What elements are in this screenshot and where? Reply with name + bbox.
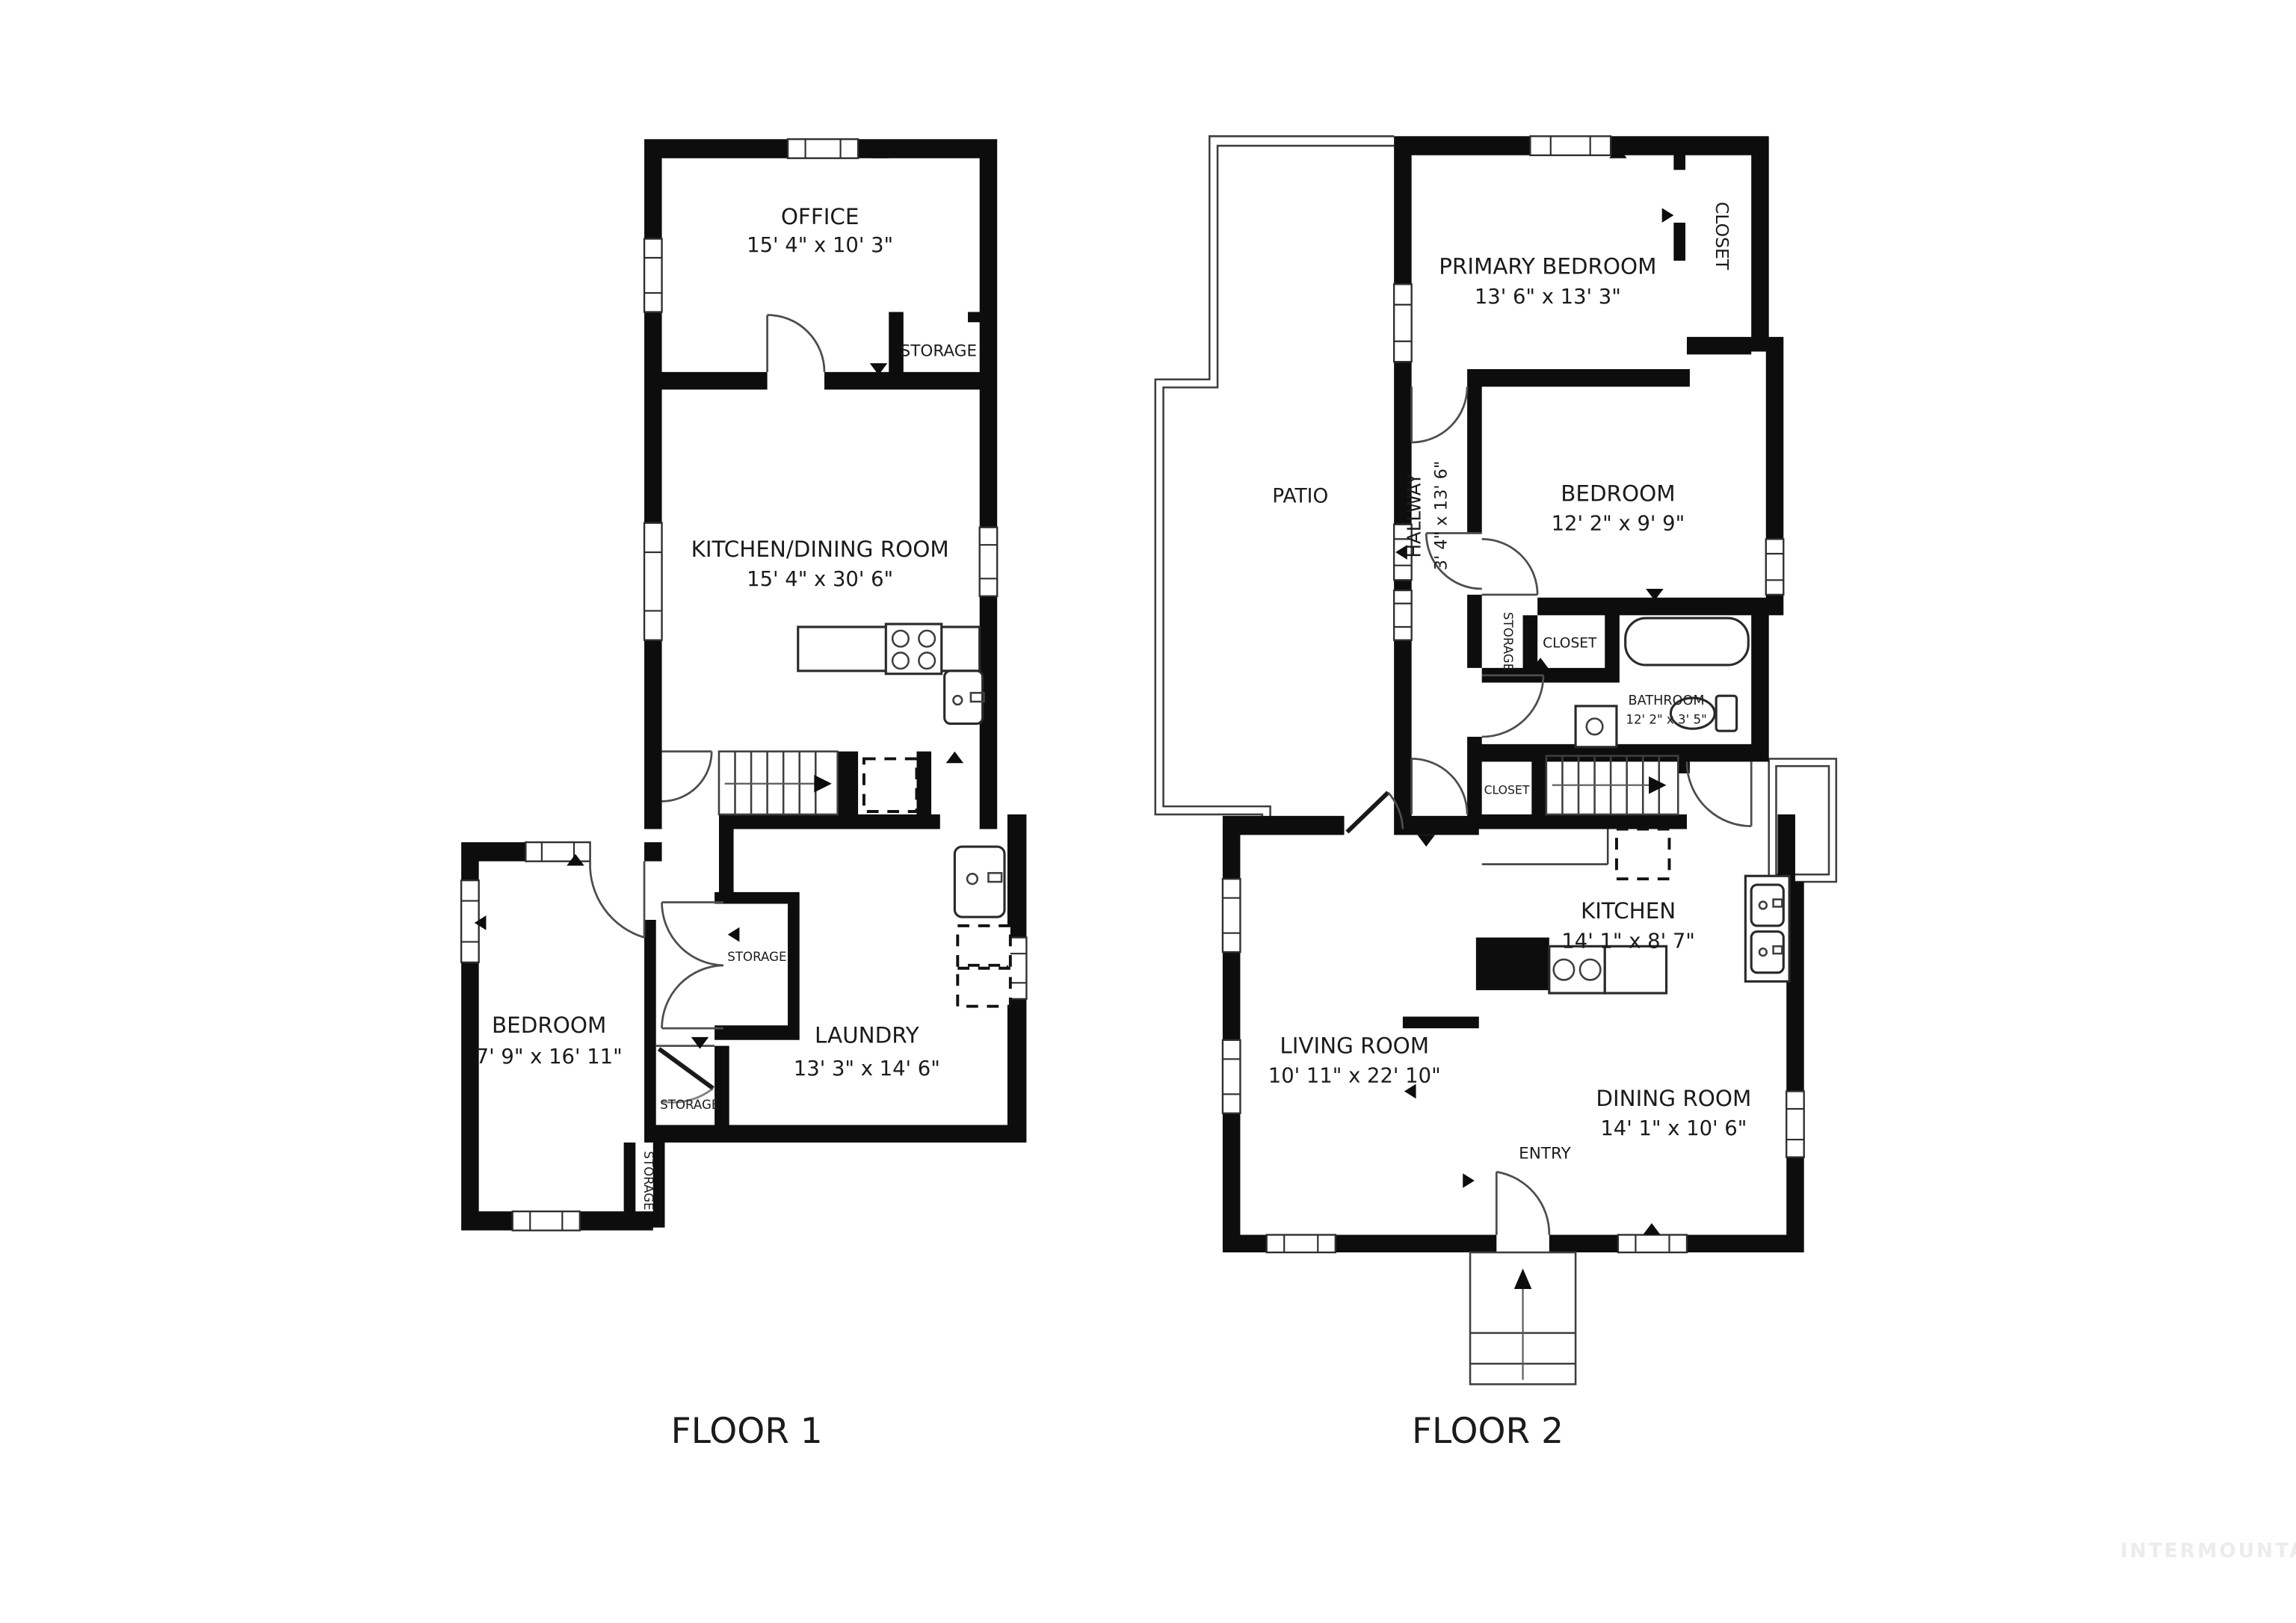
appliance2-dashed-box [1617, 829, 1670, 879]
bathroom-dims: 12' 2" x 3' 5" [1626, 712, 1706, 726]
kitchen2-dims: 14' 1" x 8' 7" [1561, 930, 1695, 953]
floor1-stairs [719, 752, 838, 814]
closet-storage-label: STORAGE [727, 950, 786, 964]
office-dims: 15' 4" x 10' 3" [747, 234, 893, 257]
washer-dashed-box [957, 926, 1010, 965]
entry-label: ENTRY [1519, 1145, 1571, 1163]
hall-closet-label: CLOSET [1543, 635, 1597, 651]
dining-room-label: DINING ROOM [1596, 1086, 1751, 1111]
office-label: OFFICE [781, 204, 860, 229]
stove-icon [886, 624, 941, 674]
kitchen2-counter-fixture [1549, 946, 1667, 993]
office-storage-label: STORAGE [901, 341, 978, 360]
dining-room-dims: 14' 1" x 10' 6" [1600, 1117, 1747, 1140]
bathtub-icon [1626, 618, 1749, 665]
kitchen2-label: KITCHEN [1581, 898, 1676, 924]
primary-bedroom-label: PRIMARY BEDROOM [1439, 254, 1656, 279]
kitchen-dining-dims: 15' 4" x 30' 6" [747, 568, 893, 591]
side-storage-label: STORAGE [641, 1151, 655, 1210]
floor2-plan: PATIO PRIMARY BEDROOM 13' 6" x 13' 3" CL… [1155, 136, 1836, 1452]
living-room-dims: 10' 11" x 22' 10" [1268, 1065, 1441, 1088]
kitchen-sink-icon [945, 671, 984, 724]
bathroom-label: BATHROOM [1629, 693, 1705, 708]
appliance-dashed-box [864, 758, 917, 811]
floor2-title: FLOOR 2 [1412, 1411, 1564, 1452]
hall-storage-label: STORAGE [1501, 612, 1515, 671]
primary-bedroom-dims: 13' 6" x 13' 3" [1475, 285, 1621, 309]
bedroom2-dims: 12' 2" x 9' 9" [1552, 513, 1685, 536]
hallway-dims: 3' 4" x 13' 6" [1432, 461, 1451, 571]
floor1-plan: OFFICE 15' 4" x 10' 3" STORAGE KITCHEN/D… [461, 139, 1026, 1452]
laundry-sink-icon [954, 847, 1004, 917]
laundry-dims: 13' 3" x 14' 6" [794, 1057, 940, 1081]
bedroom1-dims: 7' 9" x 16' 11" [476, 1045, 623, 1069]
hallway-label: HALLWAY [1403, 474, 1425, 558]
living-room-label: LIVING ROOM [1280, 1033, 1429, 1058]
primary-closet-label: CLOSET [1712, 202, 1732, 270]
stove2-icon [1549, 946, 1605, 993]
watermark-text: INTERMOUNTAIN [2120, 1539, 2296, 1562]
entry-steps [1470, 1252, 1576, 1384]
laundry-label: LAUNDRY [815, 1023, 919, 1048]
kitchen-dining-label: KITCHEN/DINING ROOM [691, 537, 949, 562]
floor1-title: FLOOR 1 [671, 1411, 823, 1452]
dryer-dashed-box [957, 968, 1010, 1007]
bedroom2-label: BEDROOM [1561, 480, 1675, 506]
floorplan-canvas: OFFICE 15' 4" x 10' 3" STORAGE KITCHEN/D… [0, 0, 2296, 1623]
bedroom1-label: BEDROOM [492, 1013, 606, 1038]
lower-storage-label: STORAGE [660, 1098, 719, 1112]
stair-closet-label: CLOSET [1484, 782, 1530, 797]
bathroom-sink-icon [1576, 706, 1617, 747]
floor2-fixtures [1470, 618, 1789, 1384]
floor2-markers [1395, 146, 1779, 1234]
patio-label: PATIO [1272, 484, 1328, 507]
double-sink-icon [1745, 876, 1789, 981]
